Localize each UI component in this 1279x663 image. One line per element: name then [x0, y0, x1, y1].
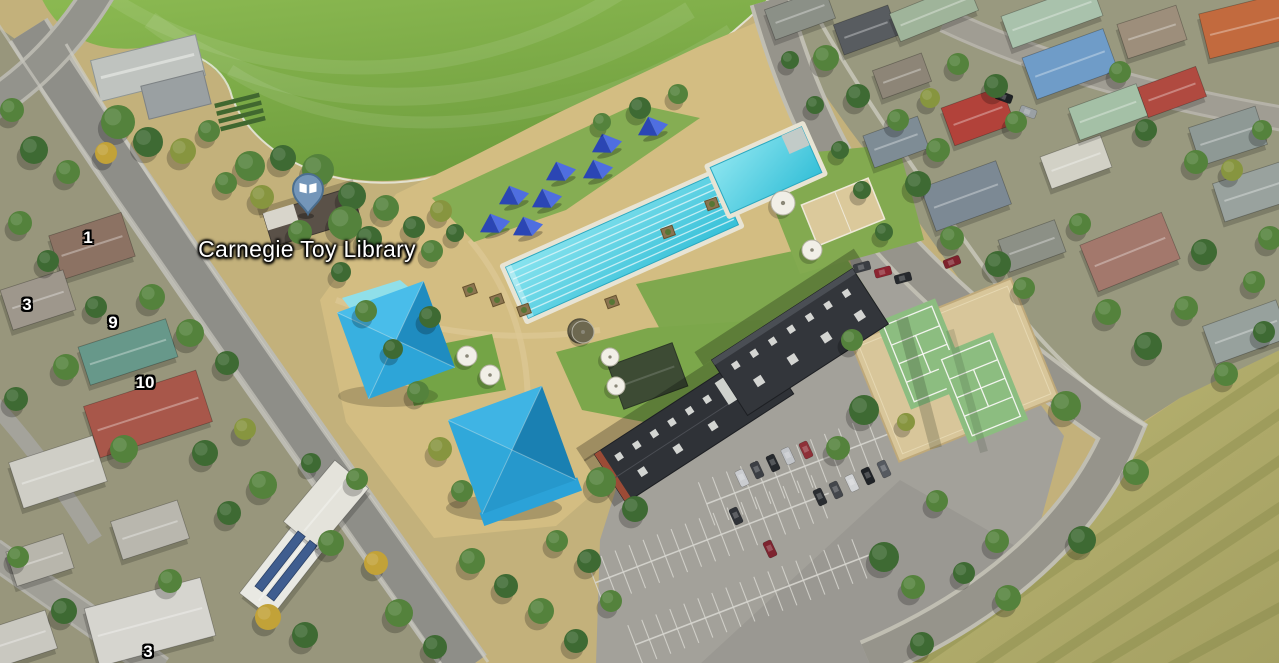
satellite-imagery	[0, 0, 1279, 663]
place-label-carnegie-toy-library[interactable]: Carnegie Toy Library	[198, 236, 416, 263]
map-canvas[interactable]: Carnegie Toy Library 139103	[0, 0, 1279, 663]
